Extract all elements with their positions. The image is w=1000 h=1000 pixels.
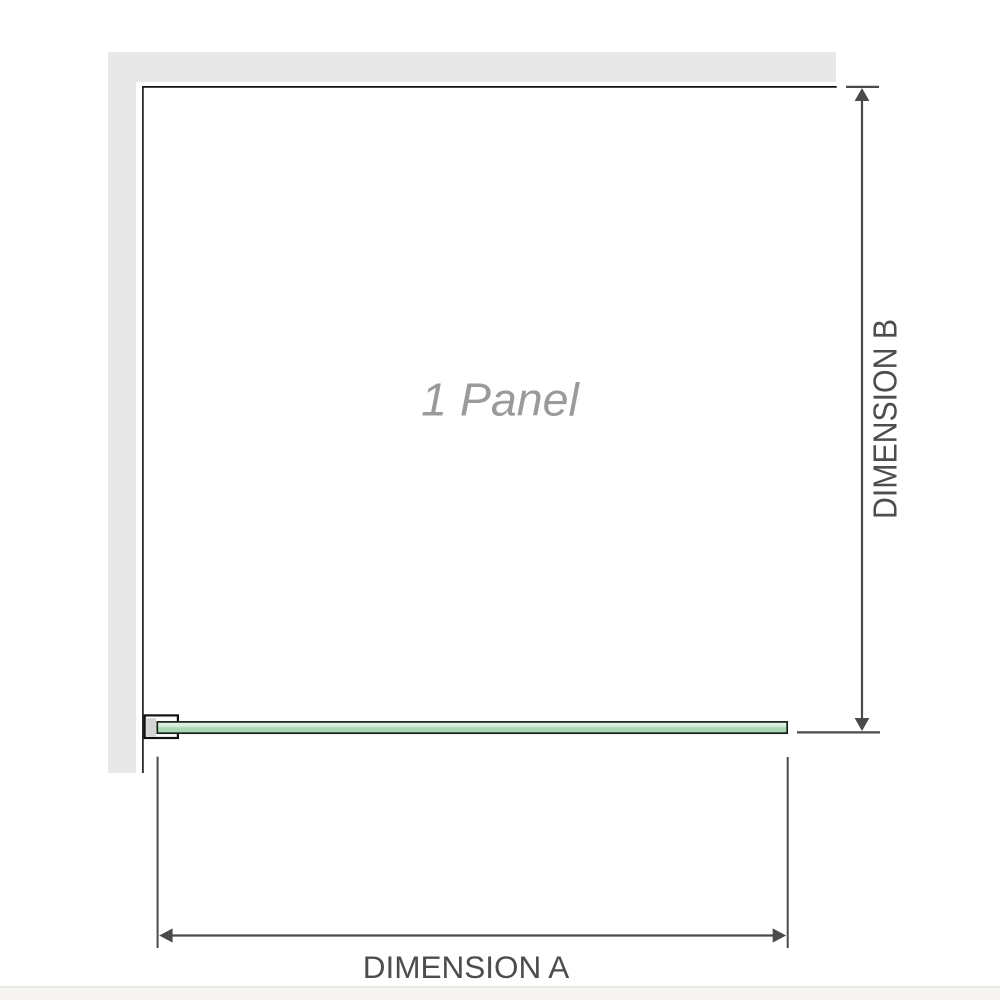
svg-text:DIMENSION B: DIMENSION B <box>867 319 904 519</box>
svg-text:DIMENSION A: DIMENSION A <box>363 949 570 985</box>
svg-text:1 Panel: 1 Panel <box>421 373 580 425</box>
